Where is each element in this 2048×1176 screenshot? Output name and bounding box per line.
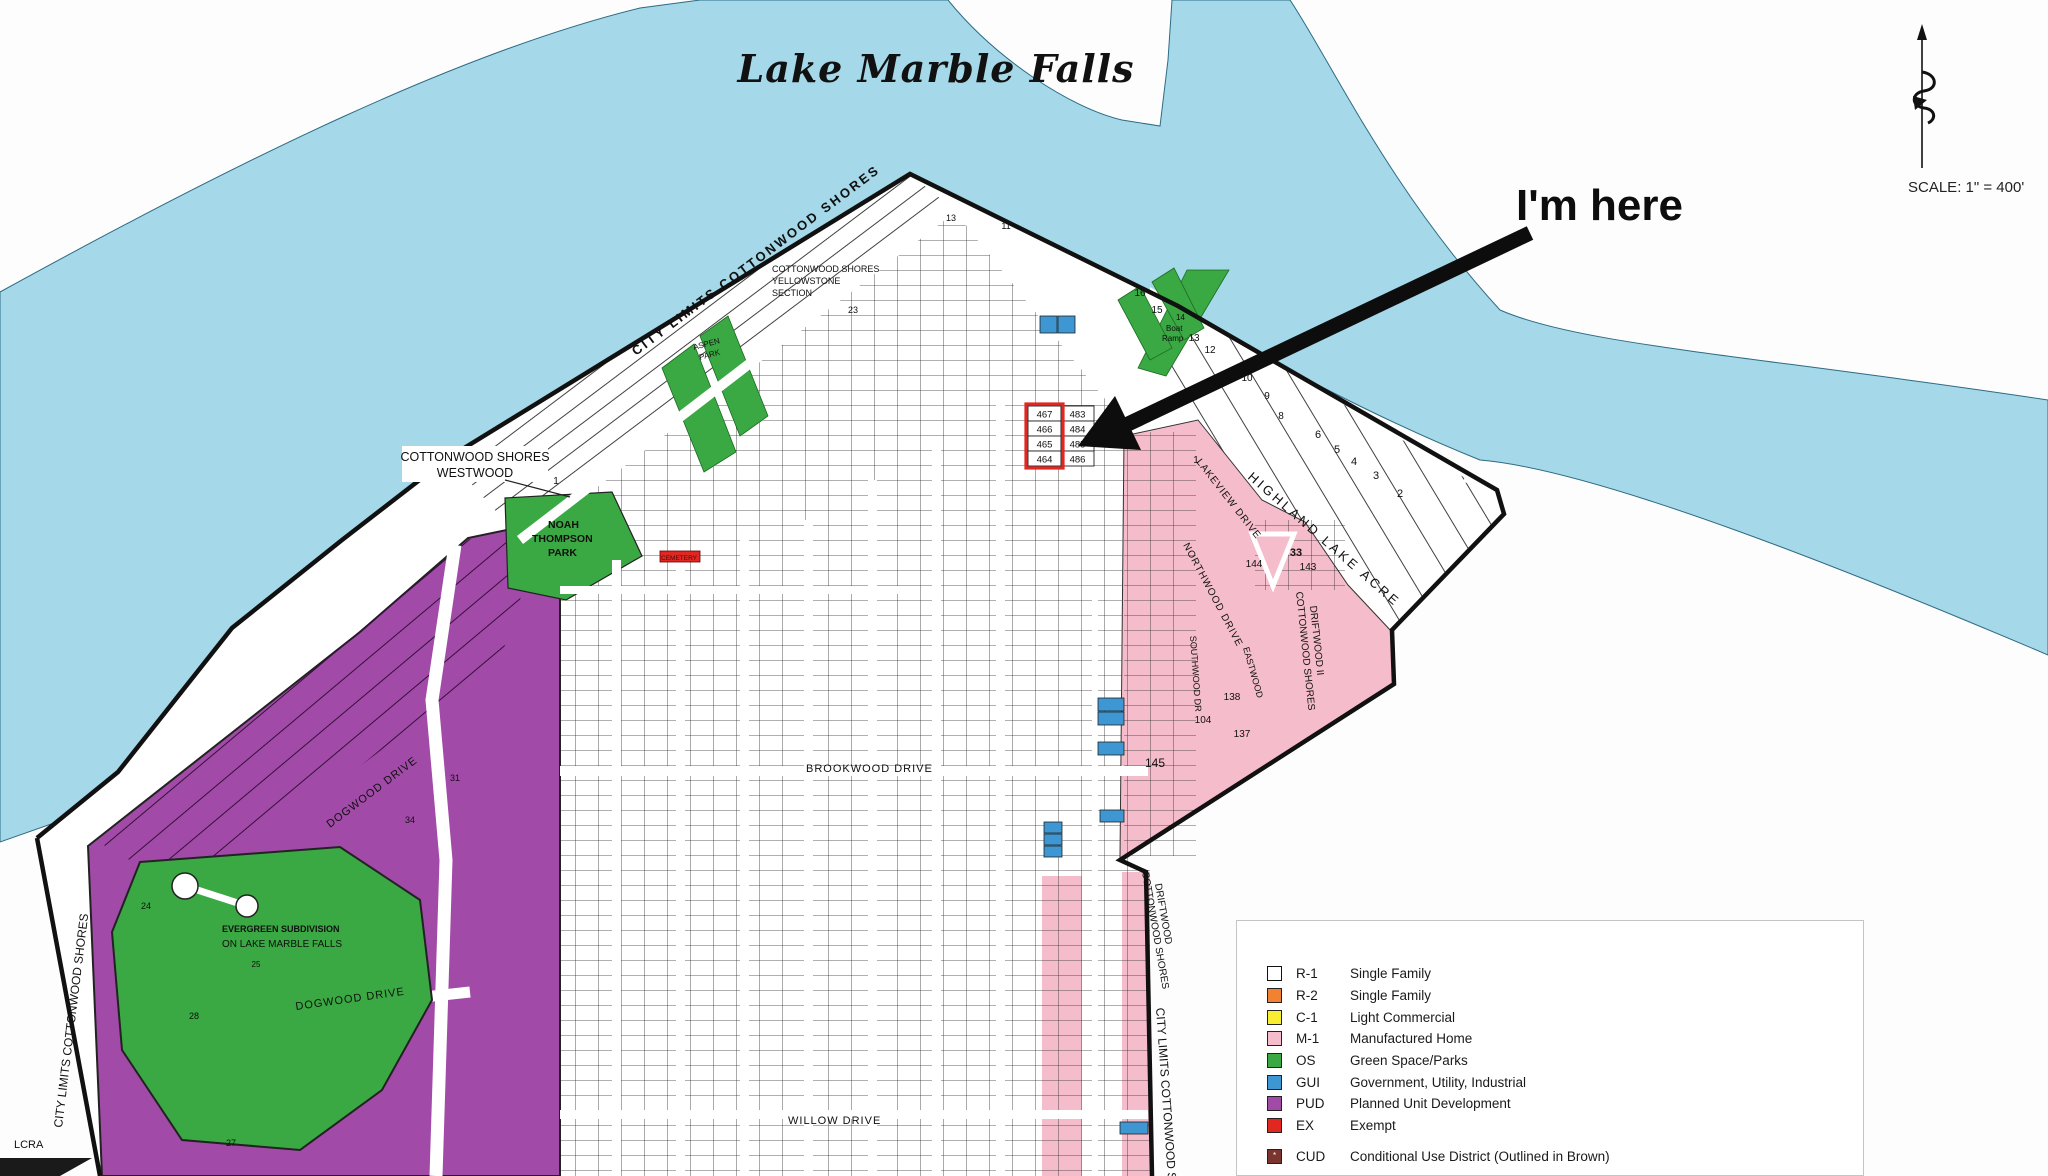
legend-label: Light Commercial <box>1350 1010 1455 1025</box>
parcel-number: 12 <box>1204 345 1216 356</box>
cul-de-sac-1 <box>172 873 198 899</box>
legend-item: R-2Single Family <box>1267 985 1863 1007</box>
legend-code: CUD <box>1296 1149 1350 1164</box>
legend-label: Conditional Use District (Outlined in Br… <box>1350 1149 1610 1164</box>
parcel-number: 25 <box>252 960 261 969</box>
legend-code: GUI <box>1296 1075 1350 1090</box>
parcel-number: 15 <box>1151 305 1163 316</box>
parcel-number: 23 <box>848 305 858 315</box>
legend-label: Planned Unit Development <box>1350 1096 1511 1111</box>
m1-col-a-grid <box>1042 876 1082 1176</box>
legend-item: *CUDConditional Use District (Outlined i… <box>1267 1146 1863 1168</box>
map-label: EVERGREEN SUBDIVISION <box>222 924 340 934</box>
map-label: WILLOW DRIVE <box>788 1115 881 1127</box>
parcel-number: 31 <box>450 773 460 783</box>
parcel-number: 10 <box>1241 373 1253 384</box>
legend-item: PUDPlanned Unit Development <box>1267 1093 1863 1115</box>
legend-label: Government, Utility, Industrial <box>1350 1075 1526 1090</box>
parcel-number: 137 <box>1234 729 1251 740</box>
m1-grid-1 <box>1124 432 1196 856</box>
legend-code: R-1 <box>1296 966 1350 981</box>
target-parcel-number: 486 <box>1070 455 1086 466</box>
legend-code: R-2 <box>1296 988 1350 1003</box>
target-parcel-number: 464 <box>1037 455 1053 466</box>
parcel-number: 11 <box>1001 221 1010 231</box>
legend-code: PUD <box>1296 1096 1350 1111</box>
im-here-annotation: I'm here <box>1516 181 1683 230</box>
parcel-number: 145 <box>1145 756 1165 770</box>
map-label: NOAH <box>548 519 579 531</box>
legend-label: Manufactured Home <box>1350 1031 1472 1046</box>
map-label: THOMPSON <box>532 533 593 545</box>
parcel-number: 6 <box>1315 429 1321 441</box>
legend-item: OSGreen Space/Parks <box>1267 1050 1863 1072</box>
map-label: SECTION <box>772 288 812 298</box>
parcel-number: 9 <box>1264 391 1270 402</box>
map-label: COTTONWOOD SHORES <box>772 264 879 274</box>
map-label: COTTONWOOD SHORES <box>400 450 549 464</box>
legend-label: Single Family <box>1350 966 1431 981</box>
legend-item: R-1Single Family <box>1267 963 1863 985</box>
legend-label: Exempt <box>1350 1118 1396 1133</box>
parcel-number: 34 <box>405 815 415 825</box>
map-label: ON LAKE MARBLE FALLS <box>222 939 342 950</box>
parcel-number: 24 <box>141 901 151 911</box>
scale-text: SCALE: 1" = 400' <box>1908 179 2024 196</box>
parcel-number: 8 <box>1278 411 1284 422</box>
parcel-number: 33 <box>1290 547 1302 559</box>
legend-swatch-os <box>1267 1053 1282 1068</box>
parcel-number: 13 <box>946 213 956 223</box>
map-label: WESTWOOD <box>437 466 513 480</box>
cul-de-sac-2 <box>236 895 258 917</box>
parcel-number: 1 <box>553 476 559 487</box>
legend: R-1Single FamilyR-2Single FamilyC-1Light… <box>1236 920 1864 1176</box>
parcel-number: 138 <box>1224 692 1241 703</box>
legend-swatch-gui <box>1267 1075 1282 1090</box>
parcel-number: 1 <box>1193 455 1199 466</box>
legend-swatch-m-1 <box>1267 1031 1282 1046</box>
legend-item: GUIGovernment, Utility, Industrial <box>1267 1071 1863 1093</box>
parcel-number: 4 <box>1351 456 1357 468</box>
legend-swatch-r-2 <box>1267 988 1282 1003</box>
target-parcel-number: 484 <box>1070 425 1086 436</box>
legend-item: EXExempt <box>1267 1115 1863 1137</box>
target-parcel-number: 467 <box>1037 410 1053 421</box>
legend-swatch-r-1 <box>1267 966 1282 981</box>
parcel-number: 27 <box>226 1138 236 1148</box>
legend-code: OS <box>1296 1053 1350 1068</box>
parcel-number: 143 <box>1300 562 1317 573</box>
parcel-number: 2 <box>1397 488 1403 500</box>
lake-title: Lake Marble Falls <box>737 46 1135 91</box>
map-label: PARK <box>548 547 577 559</box>
parcel-number: 28 <box>189 1011 199 1021</box>
parcel-number: 13 <box>1188 333 1200 344</box>
map-label: CITY LIMITS COTTONWOOD SHORES <box>1153 1007 1182 1176</box>
target-parcel-number: 466 <box>1037 425 1053 436</box>
legend-label: Green Space/Parks <box>1350 1053 1468 1068</box>
map-label: LCRA <box>14 1139 44 1151</box>
map-label: Ramp <box>1162 334 1184 343</box>
target-parcel-number: 483 <box>1070 410 1086 421</box>
legend-code: EX <box>1296 1118 1350 1133</box>
north-arrow-icon <box>1913 24 1934 168</box>
parcel-number: 5 <box>1334 444 1340 456</box>
legend-swatch-c-1 <box>1267 1010 1282 1025</box>
target-parcel-number: 465 <box>1037 440 1053 451</box>
map-label: 14 <box>1176 313 1185 322</box>
legend-swatch-ex <box>1267 1118 1282 1133</box>
map-label: YELLOWSTONE <box>772 276 840 286</box>
parcel-number: 16 <box>1134 288 1146 299</box>
parcel-number: 104 <box>1195 715 1212 726</box>
map-label: BROOKWOOD DRIVE <box>806 763 933 775</box>
parcel-number: 3 <box>1373 470 1379 482</box>
legend-code: C-1 <box>1296 1010 1350 1025</box>
scan-artifact <box>0 1158 92 1176</box>
map-label: Boat <box>1166 324 1183 333</box>
legend-item: M-1Manufactured Home <box>1267 1028 1863 1050</box>
legend-swatch-pud <box>1267 1096 1282 1111</box>
zoning-map: 467466465464483484485486 I'm here Lake M… <box>0 0 2048 1176</box>
legend-code: M-1 <box>1296 1031 1350 1046</box>
legend-label: Single Family <box>1350 988 1431 1003</box>
parcel-number: 144 <box>1246 559 1263 570</box>
target-parcels: 467466465464483484485486 <box>1028 406 1094 466</box>
map-label: CEMETERY <box>661 555 698 562</box>
legend-swatch-cud: * <box>1267 1149 1282 1164</box>
legend-item: C-1Light Commercial <box>1267 1006 1863 1028</box>
